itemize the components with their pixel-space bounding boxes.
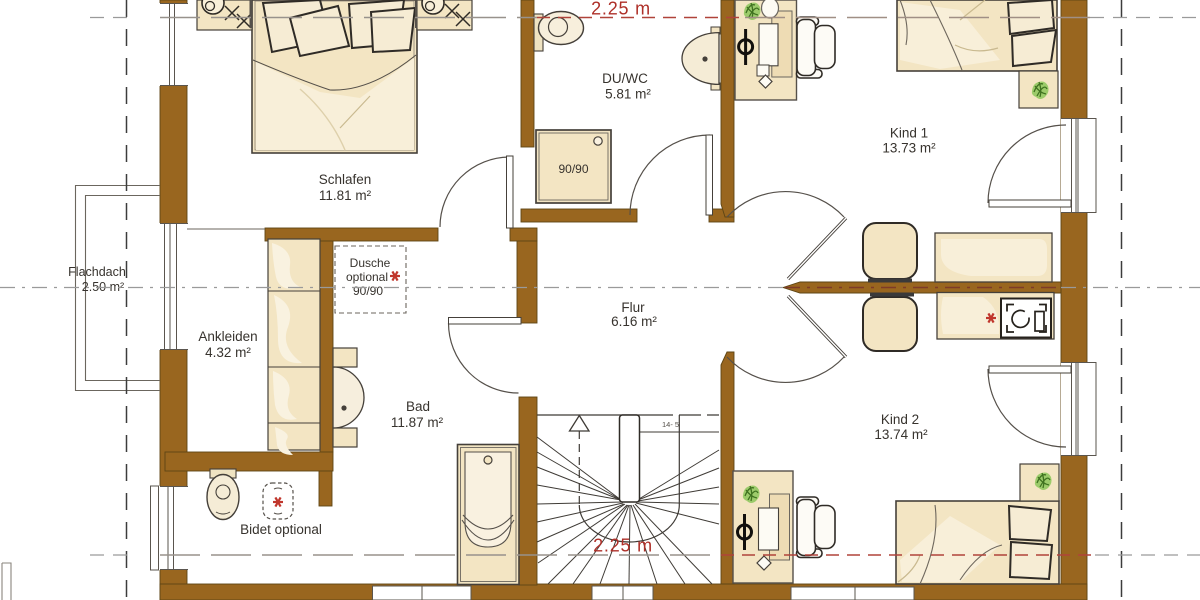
svg-text:90/90: 90/90	[353, 284, 383, 298]
svg-text:5.81 m²: 5.81 m²	[605, 87, 651, 102]
svg-text:6.16 m²: 6.16 m²	[611, 314, 657, 329]
svg-text:Schlafen: Schlafen	[319, 172, 372, 187]
svg-text:Kind 2: Kind 2	[881, 412, 919, 427]
svg-text:4.32 m²: 4.32 m²	[205, 345, 251, 360]
svg-text:Bidet optional: Bidet optional	[240, 522, 322, 537]
svg-text:2.25 m: 2.25 m	[593, 536, 653, 556]
svg-text:Kind 1: Kind 1	[890, 126, 928, 141]
svg-text:13.73 m²: 13.73 m²	[882, 141, 936, 156]
svg-text:13.74 m²: 13.74 m²	[874, 427, 928, 442]
svg-text:11.87 m²: 11.87 m²	[391, 415, 444, 430]
svg-text:Flur: Flur	[621, 300, 645, 315]
svg-text:optional: optional	[346, 270, 388, 284]
svg-text:Dusche: Dusche	[350, 256, 391, 270]
svg-text:Ankleiden: Ankleiden	[198, 329, 257, 344]
svg-text:11.81 m²: 11.81 m²	[319, 188, 372, 203]
svg-text:DU/WC: DU/WC	[602, 71, 648, 86]
svg-text:Flachdach: Flachdach	[68, 265, 126, 279]
svg-text:Bad: Bad	[406, 399, 430, 414]
svg-text:90/90: 90/90	[558, 162, 588, 176]
svg-text:14- 5: 14- 5	[662, 420, 679, 429]
svg-text:2.25 m: 2.25 m	[591, 0, 651, 19]
